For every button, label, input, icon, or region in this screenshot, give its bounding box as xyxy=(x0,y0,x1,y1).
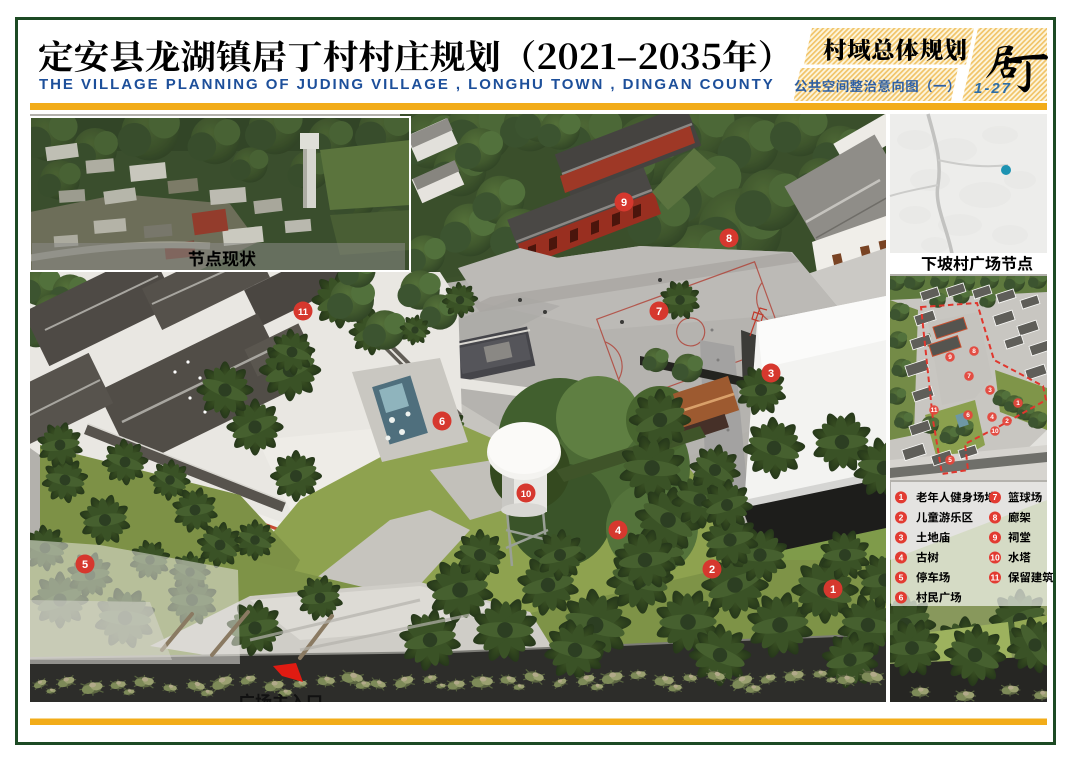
svg-text:6: 6 xyxy=(899,592,904,602)
svg-text:5: 5 xyxy=(899,572,904,582)
svg-text:7: 7 xyxy=(993,492,998,502)
svg-text:2: 2 xyxy=(1005,418,1009,425)
svg-text:11: 11 xyxy=(298,307,309,318)
svg-text:6: 6 xyxy=(966,412,970,419)
svg-text:10: 10 xyxy=(521,489,532,500)
svg-text:1: 1 xyxy=(899,492,904,502)
svg-text:4: 4 xyxy=(615,525,622,537)
svg-text:1: 1 xyxy=(1016,400,1020,407)
svg-text:8: 8 xyxy=(726,233,732,245)
svg-text:11: 11 xyxy=(991,572,1000,582)
svg-text:10: 10 xyxy=(990,552,1000,562)
svg-text:10: 10 xyxy=(991,428,999,435)
svg-text:9: 9 xyxy=(993,532,998,542)
svg-text:4: 4 xyxy=(990,414,994,421)
svg-text:8: 8 xyxy=(993,512,998,522)
svg-text:8: 8 xyxy=(972,348,976,355)
svg-text:11: 11 xyxy=(931,407,938,414)
svg-text:1-27: 1-27 xyxy=(974,80,1012,97)
svg-text:9: 9 xyxy=(948,354,952,361)
svg-text:2: 2 xyxy=(899,512,904,522)
svg-text:3: 3 xyxy=(899,532,904,542)
svg-text:4: 4 xyxy=(899,552,904,562)
svg-text:5: 5 xyxy=(82,559,88,571)
svg-text:1: 1 xyxy=(830,584,836,596)
svg-text:3: 3 xyxy=(768,368,774,380)
svg-text:7: 7 xyxy=(656,306,662,318)
svg-text:9: 9 xyxy=(621,197,627,209)
svg-text:3: 3 xyxy=(988,387,992,394)
svg-text:6: 6 xyxy=(439,416,445,428)
svg-text:2: 2 xyxy=(709,564,715,576)
svg-text:7: 7 xyxy=(967,373,971,380)
svg-text:5: 5 xyxy=(948,457,952,464)
